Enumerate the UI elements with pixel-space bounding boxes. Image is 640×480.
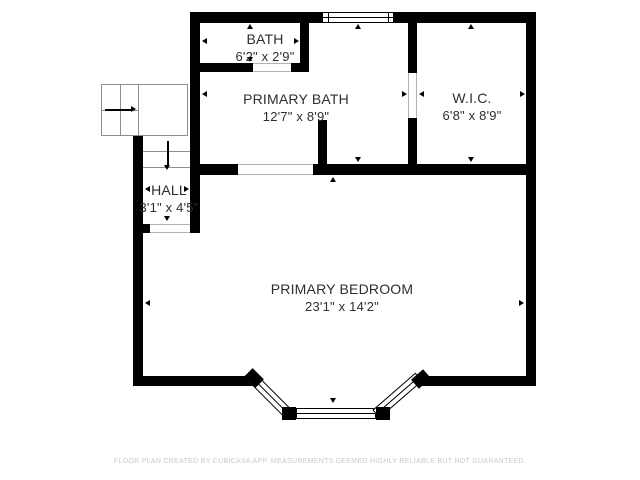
stair-direction-arrow-right-line	[105, 109, 131, 111]
dim-arrow-down-icon	[330, 398, 336, 403]
room-name: PRIMARY BATH	[243, 91, 349, 107]
wall-wic-left-upper	[408, 23, 417, 73]
dim-arrow-right-icon	[519, 300, 524, 306]
wall-bottom-left-segment	[133, 376, 255, 386]
dim-arrow-up-icon	[330, 177, 336, 182]
room-label-primary-bedroom: PRIMARY BEDROOM 23'1" x 14'2"	[271, 281, 414, 315]
bay-corner-cap-bottom-right	[376, 407, 390, 420]
window-frame-line	[328, 13, 329, 22]
room-label-hall: HALL 3'1" x 4'5"	[139, 182, 198, 216]
opening-primarybath-top	[238, 164, 313, 165]
stair-direction-arrow-down-icon	[164, 165, 170, 170]
room-dims: 12'7" x 8'9"	[243, 109, 349, 125]
window-bay-bottom	[296, 408, 376, 419]
room-name: W.I.C.	[442, 90, 501, 106]
dim-arrow-right-icon	[520, 91, 525, 97]
wall-left-exterior	[133, 136, 143, 386]
room-label-wic: W.I.C. 6'8" x 8'9"	[442, 90, 501, 124]
wall-bath-right	[300, 23, 309, 72]
dim-arrow-up-icon	[355, 24, 361, 29]
dim-arrow-right-icon	[402, 91, 407, 97]
room-name: BATH	[235, 31, 294, 47]
window-top	[322, 12, 394, 23]
opening-wic-door-left	[408, 73, 409, 118]
stair-direction-arrow-right-icon	[131, 106, 136, 112]
room-dims: 6'8" x 8'9"	[442, 108, 501, 124]
room-name: PRIMARY BEDROOM	[271, 281, 414, 297]
opening-primarybath-bottom	[238, 174, 313, 175]
room-dims: 23'1" x 14'2"	[271, 299, 414, 315]
dim-arrow-left-icon	[202, 38, 207, 44]
window-glass-line	[323, 17, 393, 18]
bay-corner-cap-bottom-left	[282, 407, 296, 420]
opening-hall-top	[150, 224, 190, 225]
dim-arrow-up-icon	[247, 24, 253, 29]
footer-disclaimer: FLOOR PLAN CREATED BY CUBICASA APP. MEAS…	[0, 458, 640, 465]
dim-arrow-down-icon	[164, 216, 170, 221]
wall-top-left-segment	[190, 12, 322, 23]
room-dims: 6'2" x 2'9"	[235, 49, 294, 65]
dim-arrow-down-icon	[355, 157, 361, 162]
dim-arrow-left-icon	[419, 91, 424, 97]
window-frame-line	[388, 13, 389, 22]
dim-arrow-down-icon	[468, 157, 474, 162]
dim-arrow-left-icon	[145, 300, 150, 306]
wall-top-right-segment	[394, 12, 536, 23]
room-label-primary-bath: PRIMARY BATH 12'7" x 8'9"	[243, 91, 349, 125]
wall-primarybath-bottom-right	[313, 164, 536, 175]
stair-direction-arrow-down-line	[167, 141, 169, 165]
wall-primarybath-stub	[318, 120, 327, 175]
floor-plan: BATH 6'2" x 2'9" PRIMARY BATH 12'7" x 8'…	[0, 0, 640, 480]
window-glass-line	[297, 413, 375, 414]
dim-arrow-right-icon	[294, 38, 299, 44]
opening-bath-door-bottom	[253, 71, 291, 72]
opening-hall-bottom	[150, 232, 190, 233]
wall-primarybath-bottom-left	[192, 164, 238, 175]
room-label-bath: BATH 6'2" x 2'9"	[235, 31, 294, 65]
wall-right-exterior	[526, 12, 536, 386]
dim-arrow-left-icon	[202, 91, 207, 97]
room-name: HALL	[139, 182, 198, 198]
wall-bottom-right-segment	[419, 376, 536, 386]
opening-wic-door-right	[416, 73, 417, 118]
wall-hall-bottom-stub	[143, 224, 150, 233]
room-dims: 3'1" x 4'5"	[139, 200, 198, 216]
dim-arrow-up-icon	[468, 24, 474, 29]
